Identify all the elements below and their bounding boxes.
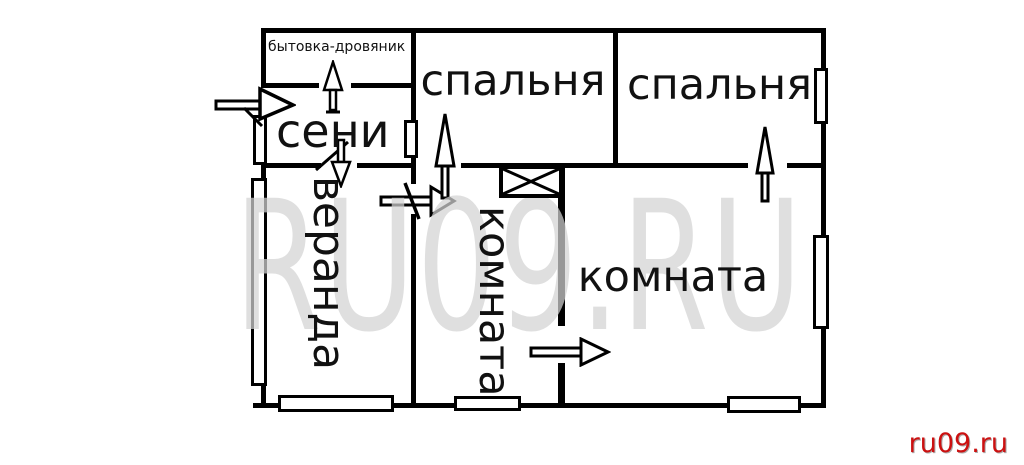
site-credit-text: ru09.ru xyxy=(909,428,1008,459)
room-label-bedroom-right: спальня xyxy=(616,62,823,109)
window-icon xyxy=(727,396,801,413)
window-icon xyxy=(454,396,521,411)
room-label-veranda: веранда xyxy=(304,176,352,370)
window-icon xyxy=(813,235,829,329)
stove-icon xyxy=(499,165,563,198)
wall-top xyxy=(261,28,826,33)
window-icon xyxy=(404,120,418,158)
wall-left-upper xyxy=(261,28,266,88)
room-label-room-vertical: комната xyxy=(470,206,517,397)
wall-bytovka-bottom-right xyxy=(351,83,416,88)
window-icon xyxy=(278,395,394,412)
room-label-bedroom-left: спальня xyxy=(413,58,613,105)
floor-plan: RU09.RU бытовка-дровяник сени спальня сп… xyxy=(0,0,1024,465)
room-label-seni: сени xyxy=(276,106,390,157)
room-label-bytovka: бытовка-дровяник xyxy=(268,40,405,55)
room-label-room-main: комната xyxy=(563,254,783,301)
